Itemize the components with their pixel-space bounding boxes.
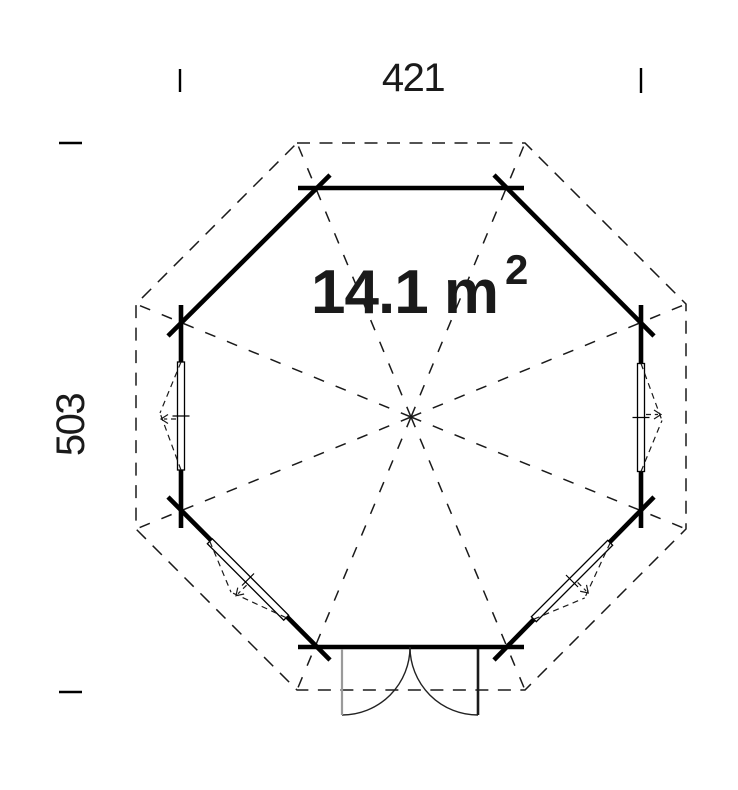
window-lower-left (195, 535, 292, 632)
depth-dimension-label: 503 (49, 394, 93, 456)
door-swing-right (410, 647, 478, 715)
floor-plan-page: 421 503 14.1 m 2 (0, 0, 738, 790)
window-right (633, 364, 663, 472)
double-door (342, 647, 478, 715)
wall-upper-left (168, 175, 330, 336)
area-label: 14.1 m 2 (311, 246, 528, 327)
window-left (160, 362, 190, 470)
area-exponent: 2 (505, 246, 528, 293)
area-value: 14.1 m (311, 258, 498, 327)
window-lower-right (528, 537, 625, 634)
roof-ridge-lines (136, 143, 686, 690)
width-dimension-label: 421 (382, 56, 444, 100)
door-swing-left (342, 647, 410, 715)
floor-plan-drawing: 421 503 14.1 m 2 (0, 0, 738, 790)
